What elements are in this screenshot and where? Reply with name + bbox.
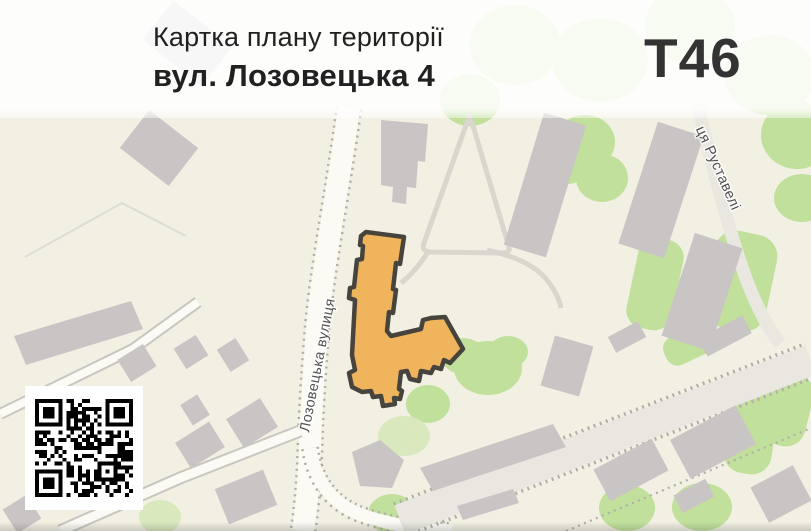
qr-code-canvas [35, 399, 133, 497]
card-address: вул. Лозовецька 4 [153, 58, 435, 94]
territory-plan-card: Лозовецька вулиця ця Руставелі Картка пл… [0, 0, 811, 531]
header: Картка плану території вул. Лозовецька 4… [0, 0, 811, 118]
card-code: Т46 [644, 26, 742, 90]
qr-code [25, 386, 143, 510]
card-title: Картка плану території [153, 22, 444, 53]
